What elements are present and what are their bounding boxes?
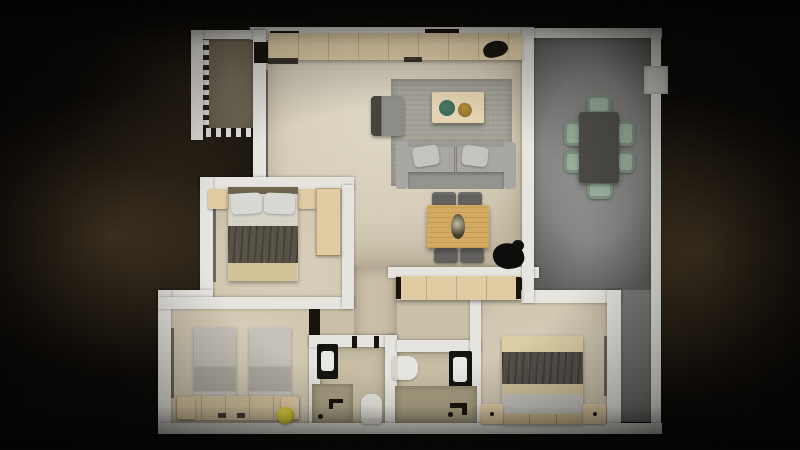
bedroom3-wardrobe-cap-left: [396, 277, 401, 299]
bathroom1-basin: [321, 351, 334, 371]
bed1-blanket: [228, 226, 298, 263]
wall-bedroom2-left: [158, 290, 171, 434]
bed1-pillow-left: [230, 192, 262, 215]
sofa-arm-left: [396, 142, 408, 189]
bathroom1-drain: [318, 414, 323, 419]
sofa-backrest: [408, 172, 504, 189]
wall-bedroom1-bottom: [158, 297, 354, 309]
bedroom1-bed: [228, 187, 298, 281]
bedroom3-nightstand-knob-left: [490, 412, 494, 416]
bed3-mid-band: [502, 384, 583, 394]
kitchen-counter-shadow-b: [404, 57, 422, 62]
room-hallway-vestibule: [320, 309, 354, 335]
wall-bedroom3-right: [607, 290, 621, 423]
bathroom1-doorframe-right: [374, 336, 379, 348]
room-balcony: [203, 38, 253, 130]
wall-balcony-left: [191, 30, 203, 140]
bed3-foot-band: [502, 336, 583, 352]
black-plant-lobe: [512, 240, 524, 251]
bed3-headboard: [502, 414, 583, 424]
bathroom1-shower-head: [329, 399, 333, 409]
bedroom3-bed: [502, 336, 583, 424]
bedroom3-nightstand-knob-right: [593, 412, 597, 416]
room-hallway: [354, 267, 397, 345]
bed1-foot: [229, 263, 297, 281]
bathroom2-drain: [448, 412, 453, 417]
bathroom1-doorframe-left: [352, 336, 357, 348]
bedroom1-nightstand-right: [298, 189, 316, 209]
table-vase: [451, 214, 465, 239]
sofa: [396, 139, 516, 189]
yellow-ball: [277, 407, 294, 424]
window-line-bedroom-2: [171, 328, 174, 398]
bathroom2-basin: [453, 357, 467, 382]
bedroom3-wardrobe: [396, 276, 521, 300]
desk-chair-bottom-left: [434, 248, 458, 263]
entry-doorway-dark: [254, 42, 268, 63]
bathroom2-shower-head: [462, 403, 467, 415]
armchair: [371, 96, 404, 136]
bathroom2-toilet: [392, 356, 418, 380]
bathroom1-toilet: [361, 394, 382, 424]
shelf-cube-left: [177, 397, 195, 419]
twin-bed-b: [249, 327, 291, 404]
sofa-arm-right: [504, 142, 516, 189]
shelf-item-a: [218, 413, 226, 418]
bedroom1-nightstand-left: [208, 189, 228, 209]
wall-bedroom3-top: [521, 290, 621, 303]
terrace-chair-bottom: [587, 181, 613, 199]
floor-plan-render: [0, 0, 800, 450]
bedroom1-wardrobe: [316, 188, 341, 256]
green-plate: [439, 100, 455, 116]
room-terrace-side-strip: [621, 290, 651, 422]
wall-hallway-left: [342, 185, 354, 309]
desk-chair-bottom-right: [460, 248, 484, 263]
shelf-item-b: [237, 413, 245, 418]
terrace-dining-table: [579, 112, 619, 183]
sofa-pillow-right: [461, 144, 489, 167]
bed1-pillow-right: [264, 192, 296, 214]
sofa-pillow-left: [412, 144, 441, 168]
wall-bottom: [158, 423, 662, 434]
wall-living-terrace-divider: [522, 28, 534, 303]
window-line-bedroom-1: [213, 198, 216, 282]
bed3-sheet: [502, 394, 583, 414]
ac-unit: [644, 66, 668, 94]
twin-bed-a: [194, 327, 236, 404]
kitchen-counter-shadow-a: [268, 58, 298, 64]
bed3-blanket: [502, 352, 583, 384]
window-line-living: [266, 70, 268, 178]
bedroom3-wardrobe-cap-right: [516, 277, 521, 299]
wall-top-terrace: [534, 28, 662, 38]
